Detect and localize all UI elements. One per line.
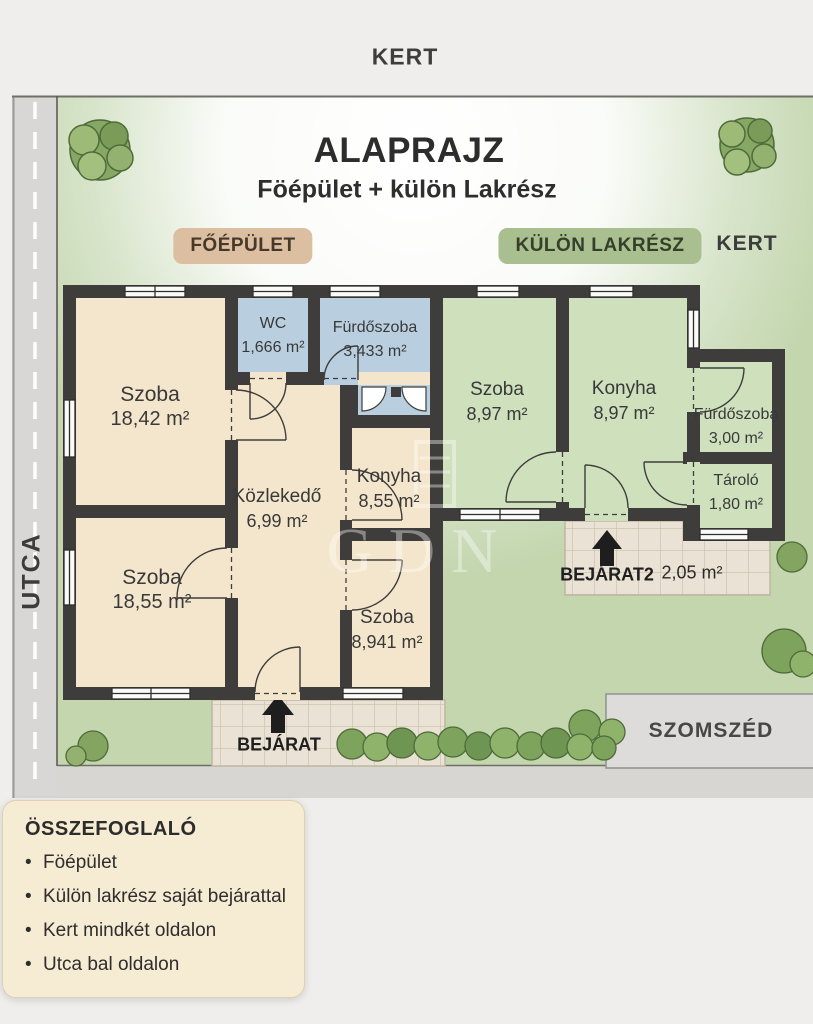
top-margin <box>0 0 813 96</box>
summary-title: ÖSSZEFOGLALÓ <box>25 818 288 841</box>
summary-item: Külön lakrész saját bejárattal <box>25 885 288 909</box>
annex-interior <box>700 362 772 528</box>
summary-item: Utca bal oldalon <box>25 953 288 977</box>
street-road <box>12 96 57 798</box>
summary-item: Kert mindkét oldalon <box>25 919 288 943</box>
floorplan-page: GDN KERT ALAPRAJZ Föépület + külön Lakré… <box>0 0 813 1024</box>
summary-item: Föépület <box>25 851 288 875</box>
summary-card: ÖSSZEFOGLALÓ Föépület Külön lakrész sajá… <box>2 800 305 998</box>
summary-list: Föépület Külön lakrész saját bejárattal … <box>25 851 288 977</box>
main-building-badge: FŐÉPÜLET <box>173 228 312 264</box>
sidewalk-band <box>12 766 813 798</box>
watermark-text: GDN <box>327 515 514 586</box>
bathroom1-room <box>320 298 430 372</box>
tree-top-right-icon <box>719 118 776 175</box>
wc-room <box>238 298 308 372</box>
neighbor-parcel <box>606 694 813 768</box>
separate-unit-badge: KÜLÖN LAKRÉSZ <box>498 228 701 264</box>
tree-top-left-icon <box>69 120 133 180</box>
